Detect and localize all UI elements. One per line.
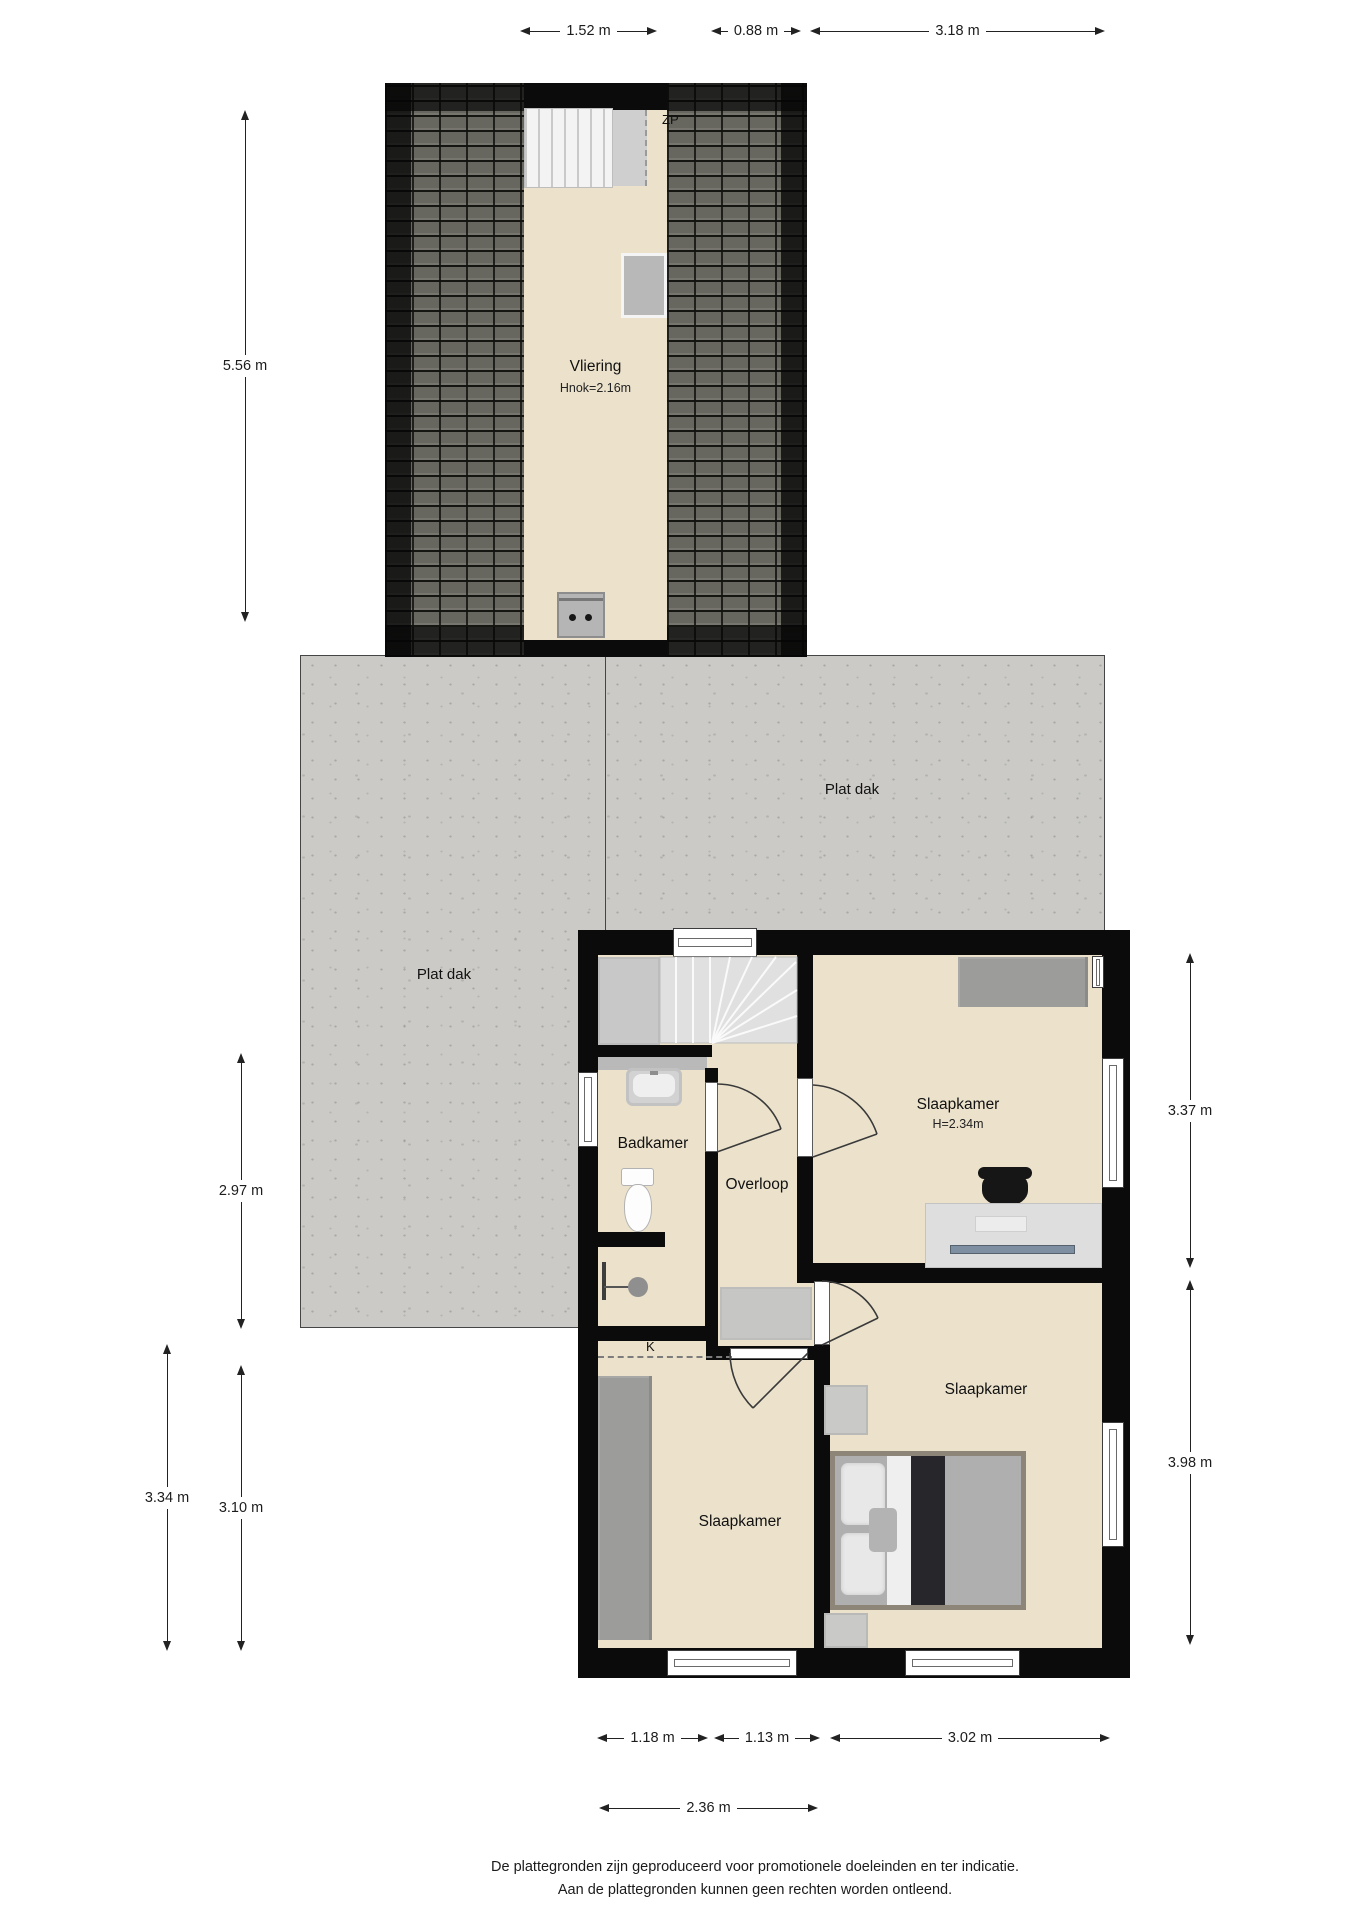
window-bedroom-tr-right — [1102, 1058, 1124, 1188]
dim-bottom-2: 1.13 m — [714, 1730, 820, 1746]
bedroom-br-label: Slaapkamer — [906, 1381, 1066, 1399]
window-bedroom-br-bottom — [905, 1650, 1020, 1676]
flat-roof-right-label: Plat dak — [802, 781, 902, 798]
disclaimer-line-2: Aan de plattegronden kunnen geen rechten… — [300, 1879, 1210, 1902]
dim-left-1-label: 5.56 m — [223, 355, 267, 377]
dim-top-2-label: 0.88 m — [728, 23, 784, 39]
stairwell-landing — [598, 957, 660, 1045]
attic-wall-top — [524, 83, 667, 110]
wall-exterior-left — [578, 930, 598, 1678]
wardrobe-bedroom-bl — [598, 1376, 652, 1640]
bedroom-bl-door — [730, 1348, 808, 1359]
dim-left-3: 3.34 m — [135, 1344, 199, 1651]
dim-top-2: 0.88 m — [711, 23, 801, 39]
flat-roof-left — [300, 655, 606, 1328]
attic-height-note: Hnok=2.16m — [524, 381, 667, 395]
bed-dark-throw — [911, 1456, 945, 1605]
attic-room-label: Vliering — [524, 358, 667, 376]
office-chair-icon — [982, 1172, 1028, 1206]
bathroom-door — [705, 1082, 718, 1152]
closet-dashed-line — [598, 1356, 732, 1358]
window-bedroom-br-right — [1102, 1422, 1124, 1547]
dim-right-2: 3.98 m — [1158, 1280, 1222, 1645]
dim-bottom-4: 2.36 m — [599, 1800, 818, 1816]
attic-stairs — [524, 108, 613, 188]
dim-bottom-2-label: 1.13 m — [739, 1730, 795, 1746]
closet-label: K — [646, 1339, 655, 1354]
dim-left-4-label: 3.10 m — [219, 1497, 263, 1519]
dim-bottom-3-label: 3.02 m — [942, 1730, 998, 1746]
monitor-icon — [950, 1245, 1075, 1254]
wall-exterior-top — [578, 930, 1130, 955]
stove-icon — [557, 592, 605, 638]
bedroom-br-door — [814, 1281, 830, 1345]
dim-right-2-label: 3.98 m — [1168, 1452, 1212, 1474]
dim-top-3-label: 3.18 m — [929, 23, 985, 39]
wall-exterior-bottom — [578, 1648, 1130, 1678]
sink-icon — [626, 1068, 682, 1106]
toilet-bowl-icon — [624, 1184, 652, 1232]
bedroom-tr-label: Slaapkamer — [878, 1096, 1038, 1114]
window-bathroom-left — [578, 1072, 598, 1147]
bedroom-tr-door — [797, 1078, 813, 1157]
desk — [925, 1203, 1102, 1268]
dim-left-2-label: 2.97 m — [219, 1180, 263, 1202]
window-top-right-slot — [1092, 956, 1104, 988]
keyboard-icon — [975, 1216, 1027, 1232]
window-stairwell-top — [673, 928, 757, 957]
dim-left-2: 2.97 m — [209, 1053, 273, 1329]
dim-bottom-1: 1.18 m — [597, 1730, 708, 1746]
nightstand-top — [824, 1385, 868, 1435]
dim-right-1-label: 3.37 m — [1168, 1100, 1212, 1122]
disclaimer-line-1: De plattegronden zijn geproduceerd voor … — [300, 1856, 1210, 1879]
bed-cushion — [869, 1508, 897, 1552]
dim-right-1: 3.37 m — [1158, 953, 1222, 1268]
floorplan-canvas: Plat dak Plat dak ZP Vliering Hnok=2.16m — [0, 0, 1358, 1920]
attic-stairs-landing — [613, 110, 647, 186]
window-bedroom-bl-bottom — [667, 1650, 797, 1676]
bathroom-label: Badkamer — [603, 1135, 703, 1153]
double-bed — [830, 1451, 1026, 1610]
bedroom-bl-label: Slaapkamer — [660, 1513, 820, 1531]
dim-left-1: 5.56 m — [213, 110, 277, 622]
bedroom-tr-height: H=2.34m — [878, 1117, 1038, 1131]
nightstand-bottom — [824, 1613, 868, 1648]
wall-exterior-right — [1102, 930, 1130, 1678]
landing-mat — [720, 1287, 812, 1340]
dim-bottom-1-label: 1.18 m — [624, 1730, 680, 1746]
attic-window-table — [621, 253, 667, 318]
attic-roof-slope-left — [385, 83, 524, 657]
wall-stairwell-south — [595, 1045, 712, 1057]
attic-wall-bottom — [524, 640, 667, 657]
flat-roof-left-label: Plat dak — [394, 966, 494, 983]
disclaimer: De plattegronden zijn geproduceerd voor … — [300, 1856, 1210, 1902]
attic-zp-label: ZP — [662, 112, 679, 127]
dim-top-3: 3.18 m — [810, 23, 1105, 39]
landing-label: Overloop — [712, 1176, 802, 1194]
dim-bottom-4-label: 2.36 m — [680, 1800, 736, 1816]
dim-bottom-3: 3.02 m — [830, 1730, 1110, 1746]
dim-left-4: 3.10 m — [209, 1365, 273, 1651]
dim-top-1: 1.52 m — [520, 23, 657, 39]
wall-shower-stub — [598, 1232, 665, 1247]
dim-left-3-label: 3.34 m — [145, 1487, 189, 1509]
attic-roof-slope-right — [667, 83, 807, 657]
dim-top-1-label: 1.52 m — [560, 23, 616, 39]
wardrobe-bedroom-tr — [958, 957, 1088, 1007]
